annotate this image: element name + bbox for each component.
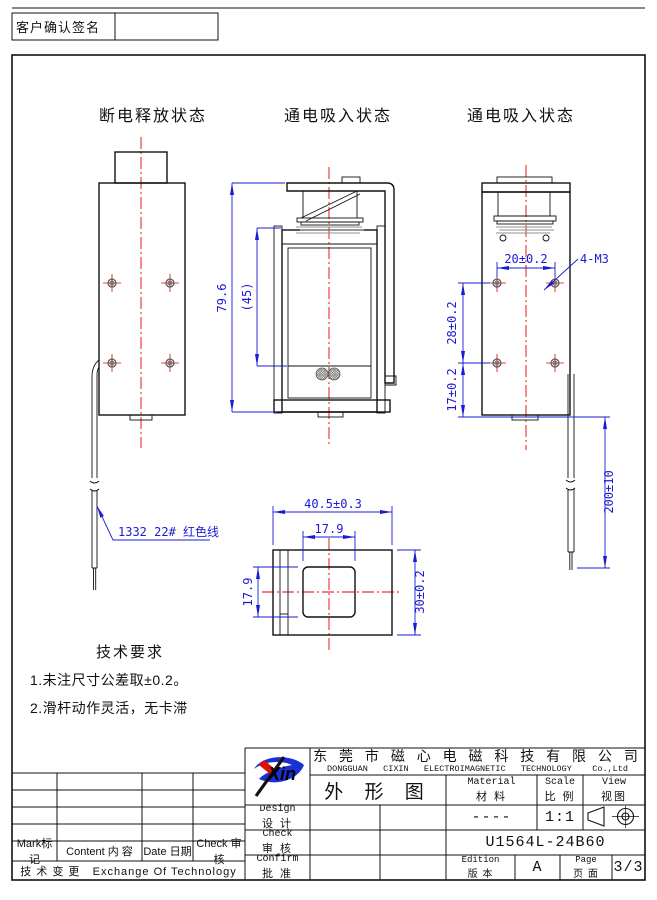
- mounting-hole: [488, 354, 506, 372]
- part-number: U1564L-24B60: [446, 830, 645, 855]
- logo-text: Xin: [267, 764, 296, 784]
- svg-text:4-M3: 4-M3: [580, 252, 609, 266]
- plunger-and-spring: [296, 191, 364, 233]
- company-name-cn: 东 莞 市 磁 心 电 磁 科 技 有 限 公 司: [312, 748, 643, 764]
- view-title-middle: 通电吸入状态: [284, 107, 392, 125]
- dim-hole-bottom-offset: 17±0.2: [445, 363, 463, 417]
- dim-bottom-width: 40.5±0.3: [273, 497, 392, 545]
- revision-header-content: Content 内 容: [57, 841, 142, 861]
- mounting-hole: [546, 354, 564, 372]
- confirm-date-field[interactable]: [380, 855, 446, 880]
- mounting-hole: [161, 354, 179, 372]
- revision-header-mark: Mark标记: [12, 841, 57, 861]
- mounting-hole: [103, 354, 121, 372]
- svg-text:79.6: 79.6: [215, 284, 229, 313]
- check-label: Check 审 核: [245, 830, 310, 855]
- check-name-field[interactable]: [310, 830, 380, 855]
- svg-text:(45): (45): [240, 283, 254, 312]
- view-bottom: 40.5±0.3 17.9 17.9 30±0.2: [241, 497, 427, 650]
- view-right-energized: 20±0.2 4-M3 28±0.2 17±0.2 200±10: [445, 165, 616, 570]
- confirm-name-field[interactable]: [310, 855, 380, 880]
- lead-wire: [90, 360, 99, 590]
- design-name-field[interactable]: [310, 805, 380, 830]
- coil-wire-section: [316, 368, 328, 380]
- wire-label: 1332 22# 红色线: [118, 524, 219, 539]
- dim-wire-length: 200±10: [458, 417, 616, 568]
- edition-value: A: [515, 855, 560, 880]
- first-angle-projection-symbol: [583, 805, 645, 830]
- view-middle-energized: 79.6 (45): [215, 167, 396, 447]
- dim-inner-height: (45): [240, 228, 287, 366]
- tech-requirements-title: 技术要求: [96, 641, 310, 662]
- confirm-label: Confirm 批 准: [245, 855, 310, 880]
- view-left-released: 1332 22# 红色线: [90, 137, 219, 590]
- material-value: ----: [446, 805, 537, 830]
- edition-label: Edition 版 本: [446, 855, 515, 880]
- view-title-left: 断电释放状态: [99, 107, 207, 125]
- company-name-en: DONGGUAN CIXIN ELECTROIMAGNETIC TECHNOLO…: [312, 763, 643, 775]
- customer-signature-label: 客户确认签名: [16, 13, 114, 40]
- customer-signature-field[interactable]: [115, 13, 218, 40]
- drawing-sheet: 断电释放状态 通电吸入状态 通电吸入状态 1332 22# 红色线: [0, 0, 657, 900]
- wire-label-leader: 1332 22# 红色线: [97, 506, 219, 540]
- svg-text:28±0.2: 28±0.2: [445, 301, 459, 344]
- dim-bottom-height: 30±0.2: [397, 550, 427, 635]
- svg-text:20±0.2: 20±0.2: [504, 252, 547, 266]
- drawing-type-title: 外 形 图: [310, 775, 446, 805]
- scale-label: Scale 比 例: [537, 775, 583, 805]
- view-label: View 视图: [583, 775, 645, 805]
- mounting-hole: [103, 274, 121, 292]
- coil-wire-section: [328, 368, 340, 380]
- material-label: Material 材 料: [446, 775, 537, 805]
- company-logo: Xin: [246, 749, 309, 804]
- svg-text:17.9: 17.9: [241, 578, 255, 607]
- revision-header-check: Check 审核: [193, 841, 245, 861]
- svg-text:17.9: 17.9: [315, 522, 344, 536]
- svg-text:17±0.2: 17±0.2: [445, 368, 459, 411]
- check-date-field[interactable]: [380, 830, 446, 855]
- projection-cone: [588, 807, 604, 826]
- view-title-right: 通电吸入状态: [467, 107, 575, 125]
- scale-value: 1:1: [537, 805, 583, 830]
- tech-requirement-item: 2.滑杆动作灵活，无卡滞: [30, 698, 310, 718]
- design-label: Design 设 计: [245, 805, 310, 830]
- page-label: Page 页 面: [560, 855, 612, 880]
- revision-footer: 技 术 变 更 Exchange Of Technology: [12, 861, 245, 880]
- svg-text:40.5±0.3: 40.5±0.3: [304, 497, 362, 511]
- mounting-hole: [161, 274, 179, 292]
- tech-requirement-item: 1.未注尺寸公差取±0.2。: [30, 670, 310, 690]
- dim-hole-pitch: 28±0.2: [445, 283, 490, 363]
- page-value: 3/3: [612, 855, 645, 880]
- svg-text:30±0.2: 30±0.2: [413, 570, 427, 613]
- svg-text:200±10: 200±10: [602, 470, 616, 513]
- design-date-field[interactable]: [380, 805, 446, 830]
- revision-header-date: Date 日期: [142, 841, 193, 861]
- technical-requirements: 技术要求 1.未注尺寸公差取±0.2。 2.滑杆动作灵活，无卡滞: [30, 641, 310, 718]
